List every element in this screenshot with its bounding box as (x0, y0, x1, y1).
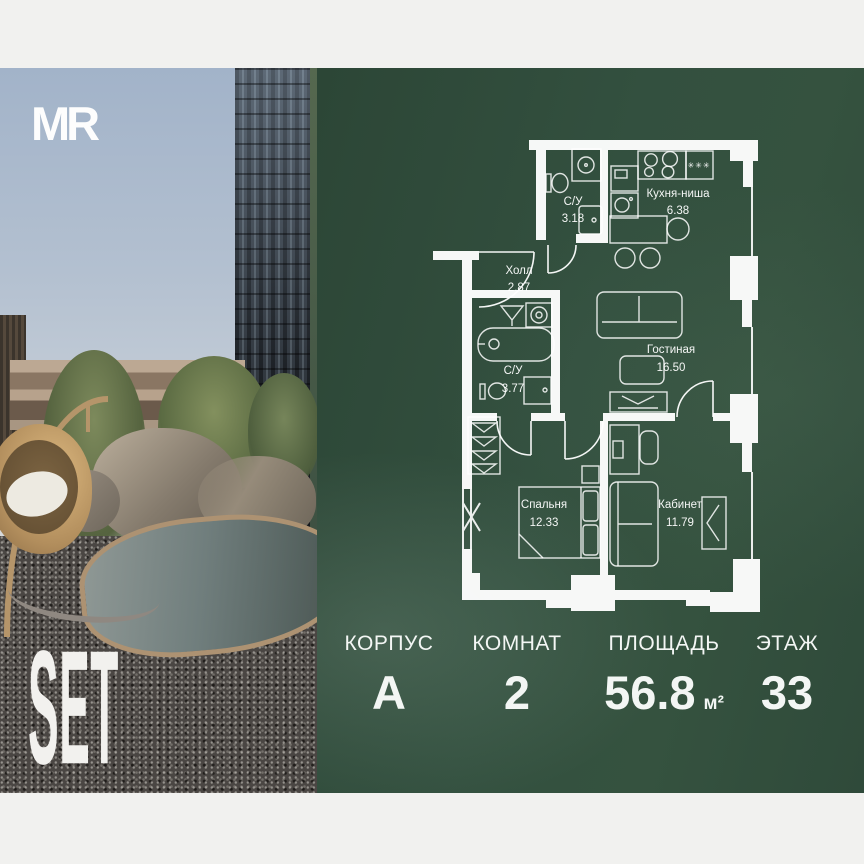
summary-label: КОРПУС (329, 632, 449, 656)
area-number: 56.8 (604, 669, 695, 716)
hanging-egg-chair (0, 424, 92, 554)
summary-etazh: ЭТАЖ 33 (727, 632, 847, 716)
summary-value: 33 (727, 669, 847, 716)
room-area: 3.77 (502, 383, 524, 395)
room-name: Кабинет (658, 499, 702, 511)
room-area: 11.79 (666, 517, 694, 529)
room-area: 6.38 (667, 205, 689, 217)
fridge-symbol: ✳✳✳ (687, 161, 710, 170)
mr-logo: MR (31, 100, 96, 147)
bottom-margin-bar (0, 793, 864, 864)
courtyard-photo: MR SET (0, 68, 317, 793)
project-name-set: SET (28, 645, 119, 771)
hanging-chair-rope (86, 402, 90, 432)
summary-label: КОМНАТ (457, 632, 577, 656)
area-unit: м² (704, 694, 724, 713)
summary-label: ЭТАЖ (727, 632, 847, 656)
summary-komnat: КОМНАТ 2 (457, 632, 577, 716)
room-name: С/У (564, 196, 584, 208)
room-name: Кухня-ниша (646, 188, 710, 200)
listing-card: { "brand": { "logo_text": "MR", "project… (0, 0, 864, 864)
room-area: 3.18 (562, 213, 584, 225)
walls (433, 140, 760, 612)
top-margin-bar (0, 0, 864, 68)
room-area: 16.50 (657, 362, 686, 374)
room-name: Спальня (521, 499, 567, 511)
summary-value: 2 (457, 669, 577, 716)
room-name: Гостиная (647, 344, 695, 356)
room-name: Холл (505, 265, 532, 277)
summary-korpus: КОРПУС А (329, 632, 449, 716)
room-name: С/У (504, 365, 524, 377)
room-area: 2.87 (508, 282, 530, 294)
room-area: 12.33 (530, 517, 559, 529)
summary-value: А (329, 669, 449, 716)
